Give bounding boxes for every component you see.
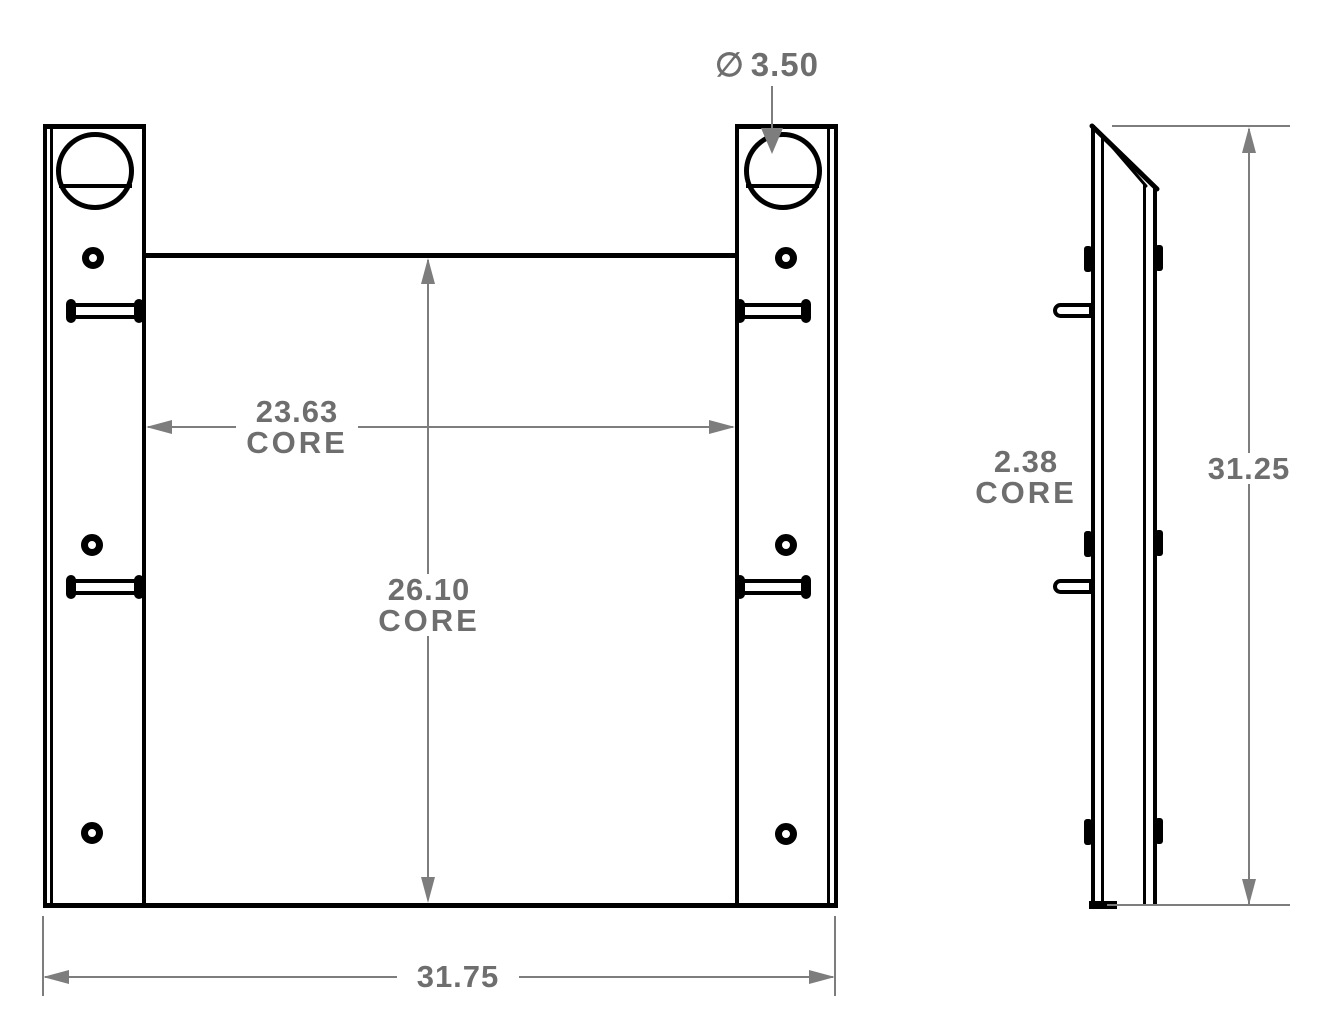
mounting-tab	[1084, 246, 1092, 272]
mounting-pin-side	[1053, 303, 1093, 318]
dim-overall-width-ext-left	[42, 916, 44, 996]
pin-cap	[66, 299, 76, 323]
core-bottom-edge	[43, 903, 838, 908]
right-filler-neck-circle	[744, 132, 822, 210]
dim-core-depth-label: 2.38 CORE	[965, 446, 1087, 508]
mounting-hole	[81, 534, 103, 556]
mounting-tab	[1084, 531, 1092, 557]
arrowhead-up-icon	[1242, 127, 1256, 153]
leader-line	[771, 86, 773, 130]
dim-value: 31.75	[397, 961, 519, 992]
dim-overall-height-ext-bottom	[1107, 904, 1290, 906]
dim-value: 23.63	[236, 396, 358, 427]
pin-cap	[735, 575, 745, 599]
mounting-hole	[775, 247, 797, 269]
arrowhead-left-icon	[43, 970, 69, 984]
dim-word: CORE	[368, 605, 490, 636]
right-filler-neck-chord	[746, 184, 819, 188]
side-right-inner-edge	[1143, 184, 1146, 905]
arrowhead-right-icon	[709, 420, 735, 434]
mounting-pin	[72, 579, 140, 595]
mounting-pin-side	[1053, 579, 1093, 594]
mounting-hole	[775, 823, 797, 845]
side-left-inner-edge	[1101, 134, 1104, 905]
arrowhead-down-icon	[421, 877, 435, 903]
technical-drawing: 23.63 CORE 26.10 CORE 31.75 ∅3.50	[0, 0, 1321, 1025]
dim-overall-height-ext-top	[1112, 125, 1290, 127]
leader-hole-diameter-label: ∅3.50	[687, 49, 847, 80]
dim-overall-height-label: 31.25	[1188, 453, 1310, 484]
mounting-hole	[775, 534, 797, 556]
left-bracket-flange-line	[50, 129, 53, 903]
dim-overall-width-ext-right	[834, 916, 836, 996]
right-bracket	[735, 124, 838, 908]
diameter-symbol-icon: ∅	[715, 46, 745, 83]
dim-value: 2.38	[965, 446, 1087, 477]
dim-word: CORE	[965, 477, 1087, 508]
dim-value: 31.25	[1188, 453, 1310, 484]
pin-cap	[66, 575, 76, 599]
core-top-edge	[146, 253, 735, 258]
side-view: 31.25 2.38 CORE	[900, 0, 1321, 1025]
pin-cap	[134, 575, 144, 599]
mounting-tab	[1155, 530, 1163, 556]
arrowhead-left-icon	[146, 420, 172, 434]
mounting-pin	[72, 303, 140, 319]
side-left-outer-edge	[1091, 125, 1095, 905]
dim-value: 26.10	[368, 574, 490, 605]
mounting-tab	[1155, 818, 1163, 844]
mounting-pin	[739, 579, 807, 595]
pin-cap	[735, 299, 745, 323]
pin-cap	[801, 299, 811, 323]
dim-value: 3.50	[751, 46, 819, 83]
mounting-tab	[1084, 819, 1092, 845]
side-top-chamfer	[1080, 120, 1170, 200]
leader-arrowhead-icon	[761, 128, 783, 154]
arrowhead-right-icon	[809, 970, 835, 984]
left-bracket	[43, 124, 146, 908]
arrowhead-down-icon	[1242, 879, 1256, 905]
left-filler-neck-chord	[59, 184, 132, 188]
arrowhead-up-icon	[421, 258, 435, 284]
mounting-tab	[1155, 245, 1163, 271]
mounting-hole	[82, 247, 104, 269]
pin-cap	[134, 299, 144, 323]
chamfer-inner-line	[1102, 135, 1146, 186]
front-view: 23.63 CORE 26.10 CORE 31.75 ∅3.50	[0, 0, 900, 1025]
left-filler-neck-circle	[56, 132, 134, 210]
mounting-pin	[739, 303, 807, 319]
dim-overall-height-line	[1248, 129, 1250, 904]
dim-core-width-label: 23.63 CORE	[236, 396, 358, 458]
dim-word: CORE	[236, 427, 358, 458]
dim-overall-width-label: 31.75	[397, 961, 519, 992]
dim-core-height-label: 26.10 CORE	[368, 574, 490, 636]
mounting-hole	[81, 822, 103, 844]
right-bracket-flange-line	[827, 129, 830, 903]
pin-cap	[801, 575, 811, 599]
